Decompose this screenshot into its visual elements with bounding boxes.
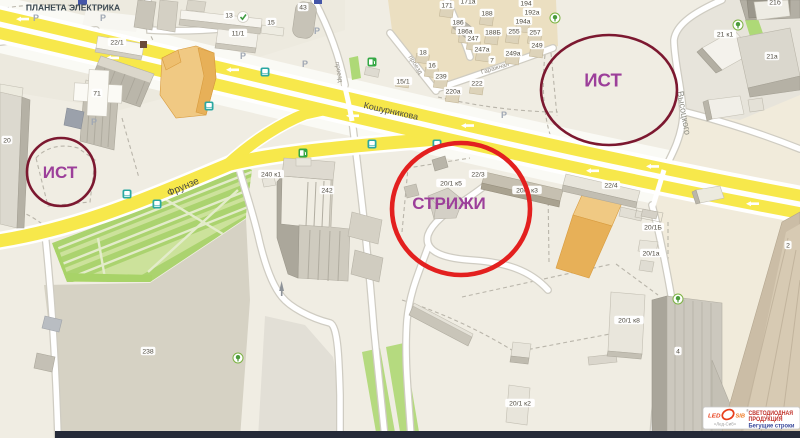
svg-text:P: P bbox=[33, 13, 39, 23]
svg-text:194а: 194а bbox=[515, 19, 530, 26]
svg-text:«Лед-Сиб»: «Лед-Сиб» bbox=[714, 422, 737, 427]
svg-text:SIB: SIB bbox=[736, 414, 746, 420]
svg-text:22/1: 22/1 bbox=[110, 40, 123, 47]
svg-text:21б: 21б bbox=[769, 0, 781, 7]
svg-text:188Б: 188Б bbox=[485, 30, 501, 37]
svg-text:249а: 249а bbox=[505, 51, 520, 58]
svg-text:188: 188 bbox=[481, 11, 493, 18]
svg-text:239: 239 bbox=[435, 74, 447, 81]
svg-text:СТРИЖИ: СТРИЖИ bbox=[412, 194, 485, 213]
svg-text:16: 16 bbox=[428, 63, 436, 70]
svg-text:22/4: 22/4 bbox=[604, 183, 617, 190]
svg-text:P: P bbox=[302, 59, 308, 69]
svg-text:P: P bbox=[100, 13, 106, 23]
svg-text:LED: LED bbox=[708, 414, 721, 420]
svg-text:P: P bbox=[91, 117, 97, 127]
svg-text:P: P bbox=[501, 110, 507, 120]
svg-text:13: 13 bbox=[225, 13, 233, 20]
svg-text:P: P bbox=[314, 26, 320, 36]
svg-text:22/3: 22/3 bbox=[471, 172, 484, 179]
svg-text:220а: 220а bbox=[445, 89, 460, 96]
svg-text:20/1 к8: 20/1 к8 bbox=[618, 318, 640, 325]
svg-text:4: 4 bbox=[676, 349, 680, 356]
svg-text:15: 15 bbox=[267, 20, 275, 27]
svg-text:171: 171 bbox=[441, 3, 453, 10]
svg-text:P: P bbox=[240, 51, 246, 61]
svg-text:255: 255 bbox=[508, 29, 520, 36]
svg-text:222: 222 bbox=[471, 81, 483, 88]
svg-text:Бегущие строки: Бегущие строки bbox=[749, 423, 795, 430]
svg-text:71: 71 bbox=[93, 91, 101, 98]
svg-text:238: 238 bbox=[142, 349, 154, 356]
svg-text:20/1Б: 20/1Б bbox=[644, 225, 662, 232]
svg-text:21а: 21а bbox=[766, 54, 778, 61]
svg-text:249: 249 bbox=[531, 43, 543, 50]
svg-text:242: 242 bbox=[321, 188, 333, 195]
svg-text:ИСТ: ИСТ bbox=[43, 163, 78, 182]
svg-text:21 к1: 21 к1 bbox=[717, 32, 733, 39]
svg-text:247: 247 bbox=[467, 36, 479, 43]
svg-text:20/1а: 20/1а bbox=[642, 251, 659, 258]
svg-text:20/1 к5: 20/1 к5 bbox=[440, 181, 462, 188]
svg-text:192а: 192а bbox=[524, 10, 539, 17]
svg-text:15/1: 15/1 bbox=[396, 79, 409, 86]
svg-text:171а: 171а bbox=[460, 0, 475, 6]
svg-text:247а: 247а bbox=[474, 47, 489, 54]
svg-text:ИСТ: ИСТ bbox=[584, 70, 622, 91]
svg-text:20/1 к2: 20/1 к2 bbox=[509, 401, 531, 408]
svg-text:43: 43 bbox=[299, 5, 307, 12]
svg-text:20: 20 bbox=[3, 138, 11, 145]
svg-text:2: 2 bbox=[786, 243, 790, 250]
svg-text:ПЛАНЕТА ЭЛЕКТРИКА: ПЛАНЕТА ЭЛЕКТРИКА bbox=[26, 3, 120, 13]
svg-text:11/1: 11/1 bbox=[232, 31, 245, 38]
svg-text:194: 194 bbox=[520, 1, 532, 8]
svg-text:7: 7 bbox=[490, 58, 494, 65]
svg-text:186: 186 bbox=[452, 20, 464, 27]
svg-text:18: 18 bbox=[419, 50, 427, 57]
svg-text:240 к1: 240 к1 bbox=[261, 172, 281, 179]
svg-text:257: 257 bbox=[529, 30, 541, 37]
